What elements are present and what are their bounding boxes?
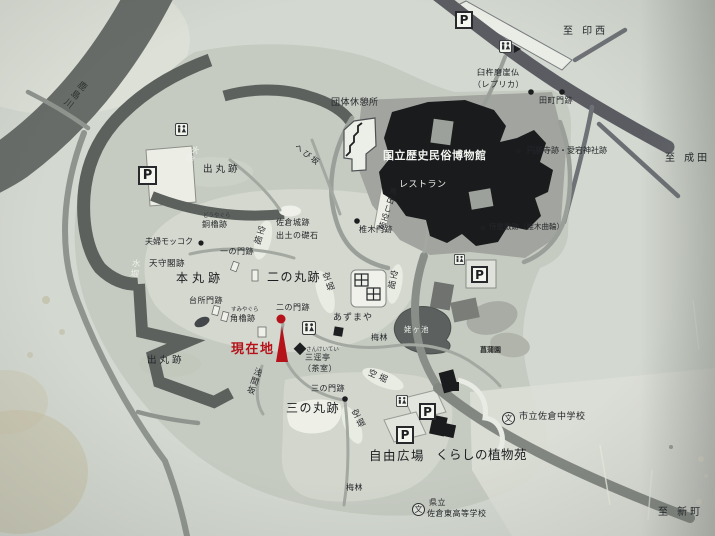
label-bairin-north: 梅林 <box>371 334 388 342</box>
label-honmaru: 本丸跡 <box>176 272 224 285</box>
label-museum: 国立歴史民俗博物館 <box>383 150 487 162</box>
label-hebizaka: へび坂 <box>293 143 322 168</box>
label-group-rest-house: 団体休憩所 <box>331 99 379 108</box>
label-karabori-3: 空堀 <box>385 269 398 291</box>
label-foundation-stone-1: 佐倉城跡 <box>276 219 310 227</box>
parking-letter: P <box>460 13 469 27</box>
label-restaurant: レストラン <box>399 181 447 190</box>
parking-icon: P <box>396 426 414 444</box>
school-mark: 文 <box>505 413 513 424</box>
label-usuki-magaibutsu: 臼杵磨崖仏 <box>477 69 520 77</box>
map-labels: 鹿島川 至 印西 至 成田 至 新町 団体休憩所 国立歴史民俗博物館 レストラン… <box>0 0 715 536</box>
label-demaru-south: 出丸跡 <box>147 356 185 366</box>
label-sankeitei-note: （茶室） <box>303 365 337 373</box>
parking-letter: P <box>475 268 484 282</box>
parking-letter: P <box>423 405 432 419</box>
parking-icon: P <box>471 266 488 283</box>
label-dou-yagura-kana: どうやぐら <box>203 214 231 220</box>
label-ichinomon: 一の門跡 <box>220 248 254 256</box>
label-mizubori-west: 水堀 <box>128 258 140 280</box>
label-azumaya: あずまや <box>333 314 373 323</box>
label-jiyu-hiroba: 自由広場 <box>369 449 425 462</box>
label-meoto-mokkoku: 夫婦モッコク <box>145 238 193 246</box>
label-bairin-south: 梅林 <box>346 484 363 492</box>
label-pref: 県立 <box>429 499 446 507</box>
label-ubagaike: 姥ヶ池 <box>404 326 430 334</box>
label-shobuen: 菖蒲園 <box>480 347 501 354</box>
label-kurashi-garden: くらしの植物苑 <box>436 448 527 461</box>
parking-icon: P <box>419 403 436 420</box>
label-ninomaru: 二の丸跡 <box>267 271 321 284</box>
label-tamachi-gate: 田町門跡 <box>539 97 573 105</box>
label-mizubori-north: 水堀 <box>182 143 200 166</box>
label-sankeitei: 三逕亭 <box>305 354 331 362</box>
label-karabori-4: 空堀 <box>366 369 391 387</box>
school-mark: 文 <box>415 504 423 515</box>
label-sumi-yagura-kana: すみやぐら <box>231 308 259 314</box>
label-dou-yagura: 銅櫓跡 <box>202 221 228 229</box>
parking-letter: P <box>143 168 153 183</box>
label-samurai-residence: 侍屋敷跡（椎木曲輪） <box>489 223 564 231</box>
label-sumi-yagura: 角櫓跡 <box>230 315 256 323</box>
label-foundation-stone-2: 出土の礎石 <box>276 232 319 240</box>
school-icon: 文 <box>502 412 515 425</box>
label-river: 鹿島川 <box>60 78 88 110</box>
parking-letter: P <box>401 428 410 442</box>
label-sannomon: 三の門跡 <box>311 385 345 393</box>
label-tenshukaku: 天守閣跡 <box>149 260 185 269</box>
parking-icon: P <box>138 166 157 185</box>
label-enshoji-atago: 円勝寺跡・愛宕神社跡 <box>527 147 607 155</box>
label-current-location: 現在地 <box>231 343 275 357</box>
label-karabori-1: 空堀 <box>251 224 266 247</box>
label-karabori-2: 空堀 <box>320 271 335 294</box>
label-junior-high: 市立佐倉中学校 <box>519 413 586 422</box>
label-usuki-replica: （レプリカ） <box>473 81 524 89</box>
school-icon: 文 <box>412 503 425 516</box>
label-daidokoro-gate: 台所門跡 <box>189 297 223 305</box>
label-to-inzai: 至 印西 <box>563 27 608 38</box>
label-karabori-5: 空堀 <box>349 408 366 431</box>
label-sengenzaka: 浅間坂 <box>244 366 262 396</box>
park-map-sign: 鹿島川 至 印西 至 成田 至 新町 団体休憩所 国立歴史民俗博物館 レストラン… <box>0 0 715 536</box>
label-to-shinmachi: 至 新町 <box>658 508 703 519</box>
label-sannomaru: 三の丸跡 <box>286 402 340 415</box>
parking-icon: P <box>455 11 473 29</box>
label-demaru-north: 出丸跡 <box>203 165 241 175</box>
label-ninomon: 二の門跡 <box>276 304 310 312</box>
label-high-school: 佐倉東高等学校 <box>427 510 487 518</box>
label-to-narita: 至 成田 <box>665 154 710 165</box>
